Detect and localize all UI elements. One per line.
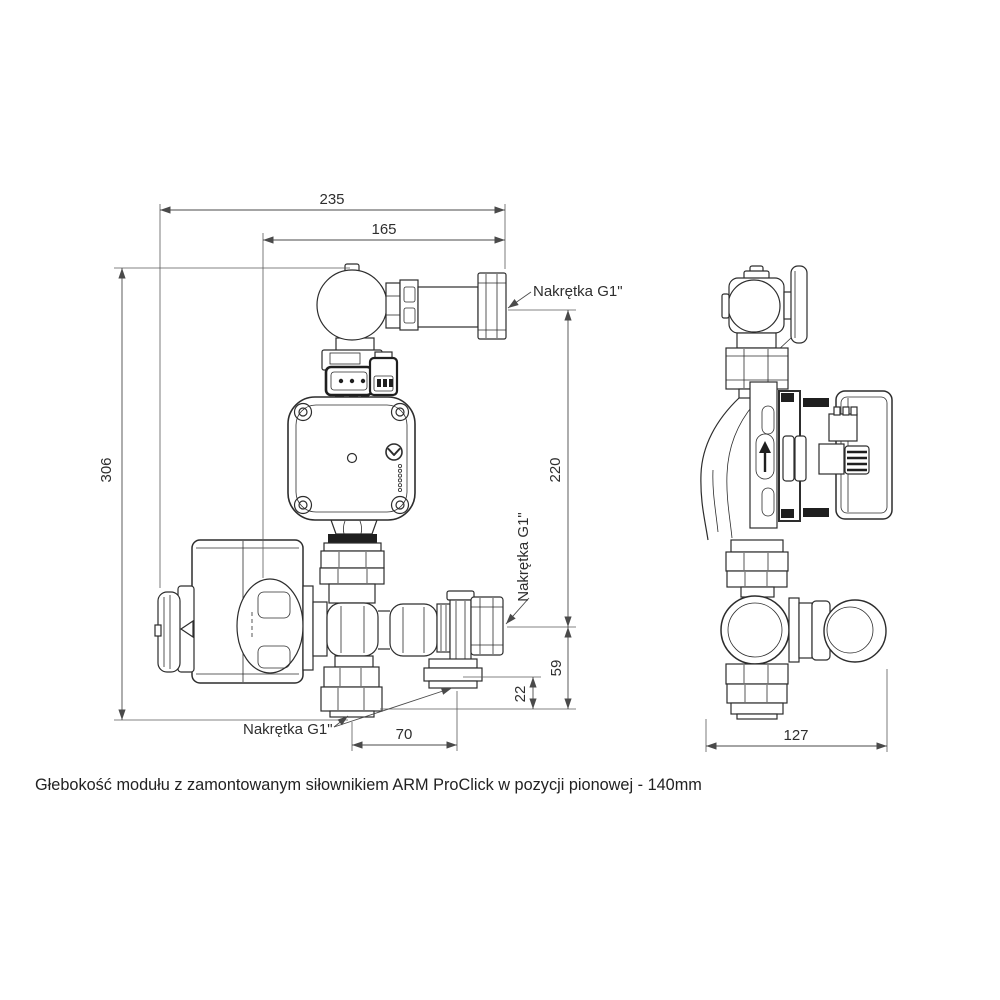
dim-width-total: 235 <box>319 191 344 208</box>
caption: Głebokość modułu z zamontowanym siłownik… <box>35 776 702 794</box>
side-view <box>701 266 892 719</box>
actuator-dome <box>237 579 303 673</box>
actuator-arm-proclick <box>155 540 327 683</box>
front-view <box>155 264 506 717</box>
label-nut-middle: Nakrętka G1" <box>515 512 532 602</box>
drawing-canvas: 235 165 306 220 59 22 70 127 Nakrętka G1… <box>0 0 1000 1000</box>
top-ball-valve <box>317 264 506 340</box>
bottom-middle-port <box>424 659 482 688</box>
pipe-fitting <box>386 283 400 328</box>
circulation-pump <box>288 338 415 520</box>
dim-offset-bottom: 22 <box>512 686 529 703</box>
side-tee <box>721 540 886 719</box>
bottom-left-port <box>321 656 382 717</box>
bypass-flange <box>447 591 474 663</box>
dim-depth: 127 <box>783 727 808 744</box>
pump-union <box>320 520 384 603</box>
pump-motor-side <box>819 391 892 519</box>
pump-side-profile <box>701 382 892 540</box>
dim-height-right: 220 <box>547 457 564 482</box>
label-nut-top: Nakrętka G1" <box>533 283 623 300</box>
actuator-knob <box>155 586 194 672</box>
gasket-band <box>328 534 377 543</box>
outlet-nut-right <box>471 597 503 655</box>
dim-width-inner: 165 <box>371 221 396 238</box>
supply-pipe <box>418 287 478 327</box>
side-actuator-knob <box>824 600 886 662</box>
dim-height-total: 306 <box>98 457 115 482</box>
dim-height-outlet: 59 <box>548 660 565 677</box>
side-lower-nuts <box>726 664 788 719</box>
dim-spacing-bottom: 70 <box>396 726 413 743</box>
electrical-connectors <box>322 350 397 401</box>
technical-drawing-sheet: 235 165 306 220 59 22 70 127 Nakrętka G1… <box>0 0 1000 1000</box>
dimension-texts: 235 165 306 220 59 22 70 127 Nakrętka G1… <box>35 191 809 794</box>
label-nut-bottom: Nakrętka G1" <box>243 721 333 738</box>
union-nut-top <box>478 273 506 339</box>
